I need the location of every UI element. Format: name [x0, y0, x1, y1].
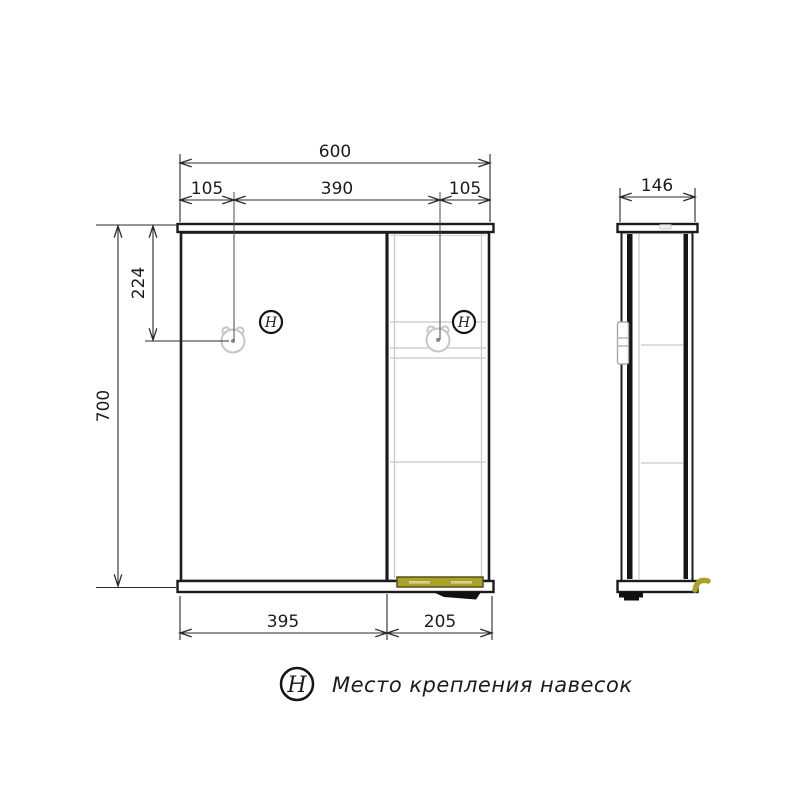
- switch-detail-side: [619, 592, 643, 598]
- dim-label-146: 146: [641, 176, 673, 196]
- cabinet-dimension-drawing: 600 105 390 105 146 700 224 395 205 H H …: [0, 0, 800, 800]
- front-top-cap: [178, 224, 494, 232]
- side-door-edge: [627, 234, 633, 579]
- front-view: [178, 224, 494, 600]
- side-bottom-cap: [618, 581, 698, 592]
- front-body: [181, 233, 489, 582]
- light-fixture-slot-2: [451, 581, 472, 584]
- switch-detail-front: [433, 592, 481, 600]
- legend: H Место крепления навесок: [281, 668, 633, 700]
- dim-label-600: 600: [319, 142, 351, 162]
- side-back-edge: [684, 234, 689, 579]
- dim-label-224: 224: [129, 267, 149, 299]
- dim-label-390: 390: [321, 179, 353, 199]
- hanger-right-center: [436, 338, 440, 342]
- dim-label-105-right: 105: [449, 179, 481, 199]
- legend-description: Место крепления навесок: [332, 673, 633, 697]
- dim-label-395: 395: [267, 612, 299, 632]
- side-view: [618, 224, 709, 601]
- side-top-cap: [618, 224, 698, 232]
- hanger-bracket-right: [427, 326, 450, 351]
- side-hinge-detail: [618, 322, 629, 364]
- dim-label-205: 205: [424, 612, 456, 632]
- dim-label-105-left: 105: [191, 179, 223, 199]
- light-fixture-side: [695, 580, 708, 590]
- side-cap-notch: [660, 225, 671, 229]
- dim-label-700: 700: [94, 390, 114, 422]
- switch-detail-side-2: [624, 597, 639, 601]
- technical-drawing-page: 600 105 390 105 146 700 224 395 205 H H …: [0, 0, 800, 800]
- hanger-symbol-left: H: [264, 315, 278, 331]
- hanger-bracket-left: [222, 327, 245, 352]
- light-fixture-slot-1: [409, 581, 430, 584]
- hanger-symbol-right: H: [457, 315, 471, 331]
- legend-symbol: H: [286, 673, 307, 698]
